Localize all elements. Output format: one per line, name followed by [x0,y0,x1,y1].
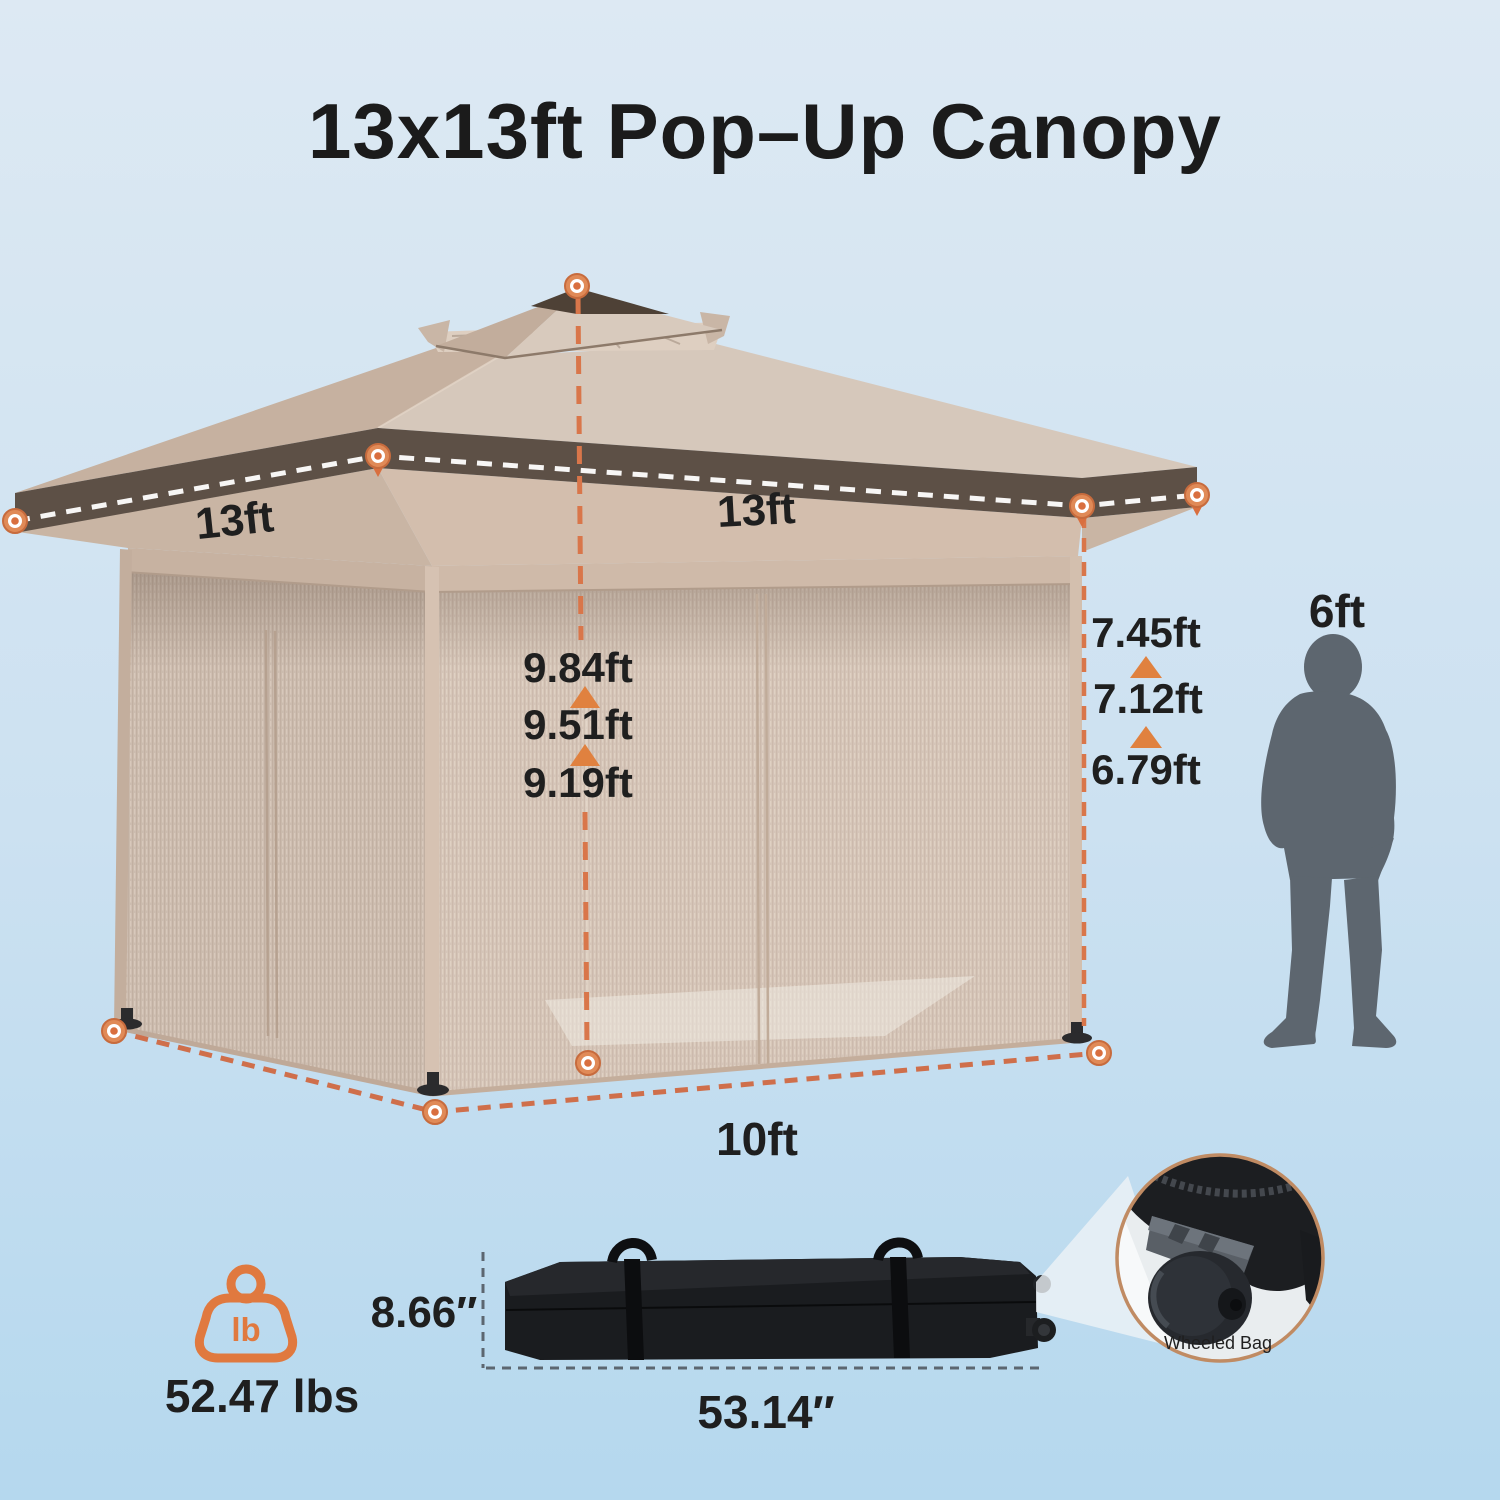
left-width-label: 13ft [193,492,276,549]
page-title: 13x13ft Pop–Up Canopy [308,87,1222,175]
weight-value: 52.47 lbs [165,1370,359,1422]
weight-icon-text: lb [231,1311,260,1348]
front-width-label: 13ft [716,484,797,537]
canopy-front-wall [425,556,1082,1094]
near-corner-post [425,566,439,1094]
base-depth-label: 10ft [716,1113,798,1165]
peak-height-1: 9.84ft [523,644,633,691]
bag-length-label: 53.14″ [697,1386,834,1438]
right-corner-post [1070,556,1082,1040]
eave-height-1: 7.45ft [1091,609,1201,656]
canopy-left-wall [114,548,432,1094]
person-height-label: 6ft [1309,585,1365,637]
eave-height-3: 6.79ft [1091,746,1201,793]
bag-height-label: 8.66″ [371,1288,478,1337]
peak-height-2: 9.51ft [523,701,633,748]
eave-height-2: 7.12ft [1093,675,1203,722]
product-infographic: 13x13ft Pop–Up Canopy [0,0,1500,1500]
wheel-callout-label: Wheeled Bag [1164,1333,1272,1353]
peak-height-3: 9.19ft [523,759,633,806]
infographic-canvas: 13x13ft Pop–Up Canopy [0,0,1500,1500]
